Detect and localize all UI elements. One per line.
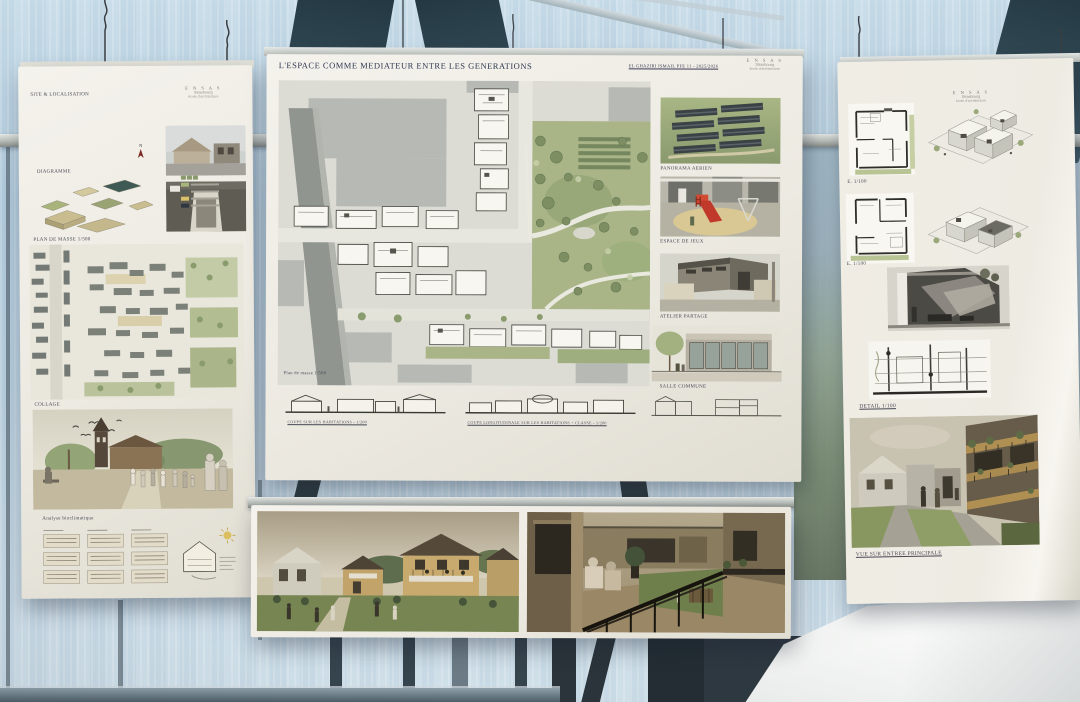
section-strip-left (285, 392, 445, 419)
hanging-wire-icon (98, 0, 112, 68)
collage-label: COLLAGE (34, 403, 59, 409)
aerial-caption: PANORAMA AERIEN (660, 166, 712, 172)
poster-title: L'ESPACE COMME MEDIATEUR ENTRE LES GENER… (279, 60, 533, 71)
legend-row (181, 196, 243, 200)
plan-1-label: E. 1/100 (847, 180, 866, 186)
school-logo-name: école d'architecture (735, 67, 795, 71)
diagram-label: DIAGRAMME (37, 169, 71, 175)
common-room-elevation (652, 325, 782, 381)
common-room-caption: SALLE COMMUNE (660, 384, 707, 390)
floor-sill-band (0, 688, 560, 702)
north-arrow-icon: N (137, 144, 145, 159)
poster-left: SITE & LOCALISATION E N S A S Strasbourg… (18, 65, 256, 599)
masterplan-caption: Plan de masse 1/500 (284, 370, 327, 376)
playground-render (660, 176, 780, 236)
playground-caption: ESPACE DE JEUX (660, 239, 704, 245)
school-logo: E N S A S Strasbourg école d'architectur… (168, 85, 238, 98)
section-caption-right: COUPE LONGITUDINALE SUR LES HABITATIONS … (467, 421, 606, 426)
legend-row (181, 182, 243, 186)
poster-right: E N S A S Strasbourg école d'architectur… (837, 58, 1080, 604)
aerial-view-render (660, 97, 780, 163)
floor-plan-2 (846, 193, 915, 264)
site-label: SITE & LOCALISATION (30, 92, 89, 98)
balcony-render (527, 512, 785, 633)
axonometric-1 (920, 95, 1039, 171)
entrance-view-caption: VUE SUR ENTREE PRINCIPALE (856, 550, 942, 558)
workshop-render (660, 253, 780, 311)
massing-diagram (33, 178, 153, 234)
window-mullion (6, 140, 10, 692)
legend-row (181, 189, 243, 193)
analysis-label: Analyse bioclimatique (42, 516, 93, 522)
floor-plan-1 (848, 103, 915, 176)
entrance-view-render (850, 415, 1040, 548)
axonometric-2 (922, 189, 1033, 261)
mini-sections (651, 393, 781, 423)
village-render (257, 511, 519, 632)
workshop-caption: ATELIER PARTAGE (660, 314, 708, 320)
poster-bottom (251, 505, 791, 639)
site-plan-drawing (29, 243, 244, 399)
bioclimatic-diagrams (41, 523, 237, 586)
section-perspective-render (887, 265, 1010, 331)
legend-row (181, 203, 243, 207)
section-caption-left: COUPE SUR LES HABITATIONS - 1/200 (287, 420, 367, 425)
plan-2-label: E. 1/100 (847, 262, 866, 268)
window-mullion (118, 600, 123, 692)
masterplan-drawing (278, 80, 651, 386)
site-photo-street (166, 125, 246, 176)
collage-illustration (33, 408, 234, 509)
legend (181, 175, 243, 207)
detail-label: DETAIL 1/100 (859, 403, 896, 410)
school-logo-name: école d'architecture (168, 94, 238, 98)
poster-center: L'ESPACE COMME MEDIATEUR ENTRE LES GENER… (265, 54, 802, 482)
plan-masse-label: PLAN DE MASSE 1/500 (33, 237, 90, 243)
detail-drawing (868, 339, 991, 399)
school-logo: E N S A S Strasbourg école d'architectur… (735, 58, 795, 71)
photo-scene: SITE & LOCALISATION E N S A S Strasbourg… (0, 0, 1080, 702)
author-line: EL GHAZIRI ISMAIL PFE 11 - 2025/2026 (629, 63, 719, 69)
section-strip-right (465, 393, 635, 420)
